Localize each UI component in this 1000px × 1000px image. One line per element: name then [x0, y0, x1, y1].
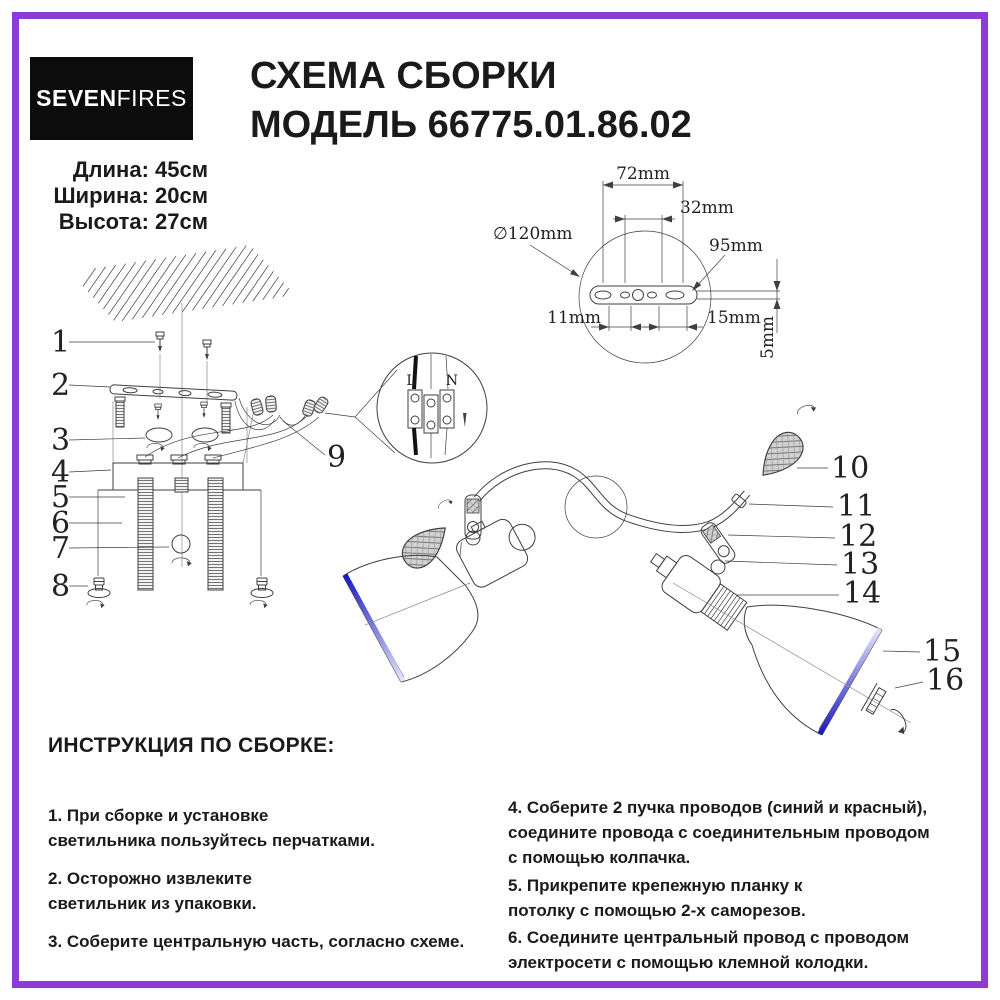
instructions-heading: ИНСТРУКЦИЯ ПО СБОРКЕ:	[48, 734, 335, 758]
left-shade-blue-rim	[343, 574, 405, 682]
right-shade-blue-rim	[818, 628, 882, 736]
terminal-detail-circle: L N	[355, 353, 487, 463]
part-2-mounting-bracket	[110, 385, 255, 463]
callout-3: 3	[51, 423, 70, 458]
callout-7: 7	[51, 531, 70, 566]
callout-8: 8	[51, 569, 70, 604]
callout-2: 2	[51, 368, 70, 403]
left-wood-knob	[396, 517, 456, 575]
callout-leaders-left	[69, 342, 169, 586]
dim-72mm: 72mm	[616, 164, 670, 184]
brand-logo-bold: SEVEN	[36, 85, 116, 112]
callout-14: 14	[843, 576, 881, 611]
left-socket-housing	[450, 502, 546, 590]
callout-9: 9	[327, 440, 346, 475]
dim-95mm: 95mm	[709, 236, 763, 256]
dim-120mm: ∅120mm	[493, 224, 573, 244]
instruction-step-6: 6. Соедините центральный провод с провод…	[508, 925, 970, 975]
page-title: СХЕМА СБОРКИ МОДЕЛЬ 66775.01.86.02	[250, 52, 692, 150]
instruction-step-5: 5. Прикрепите крепежную планку к потолку…	[508, 873, 970, 923]
central-arm	[477, 465, 747, 538]
terminal-label-neutral: N	[446, 373, 458, 389]
right-finial-screw	[861, 683, 887, 717]
right-wood-knob	[752, 426, 810, 486]
left-clamp	[465, 495, 481, 545]
callout-leaders-right	[725, 468, 923, 688]
callout-10: 10	[831, 451, 869, 486]
dim-11mm: 11mm	[547, 308, 601, 328]
terminal-label-line: L	[406, 373, 415, 389]
dim-15mm: 15mm	[707, 308, 761, 328]
instruction-step-3: 3. Соберите центральную часть, согласно …	[48, 929, 508, 954]
bracket-dimension-diagram: 72mm 32mm 95mm ∅120mm 11mm 15mm 5mm	[493, 164, 781, 363]
assembly-diagram: 1 2 3 4 5 6 7 8 9	[25, 155, 975, 735]
brand-logo-light: FIRES	[117, 85, 187, 112]
left-shade	[343, 555, 478, 682]
dim-5mm: 5mm	[758, 316, 778, 359]
right-socket	[641, 540, 750, 635]
part-9-wires	[145, 396, 355, 458]
instruction-step-4: 4. Соберите 2 пучка проводов (синий и кр…	[508, 795, 970, 870]
dim-32mm: 32mm	[680, 198, 734, 218]
brand-logo: SEVENFIRES	[30, 57, 193, 140]
instruction-step-1: 1. При сборке и установке светильника по…	[48, 803, 488, 853]
part-5-6-housing	[98, 478, 261, 590]
ceiling-hatching	[55, 240, 322, 327]
part-1-screws	[156, 332, 211, 403]
left-lamp	[343, 495, 546, 682]
part-8-bottom-screws	[87, 578, 273, 608]
callout-16: 16	[926, 663, 964, 698]
instruction-step-2: 2. Осторожно извлеките светильник из упа…	[48, 866, 488, 916]
callout-1: 1	[51, 325, 70, 360]
